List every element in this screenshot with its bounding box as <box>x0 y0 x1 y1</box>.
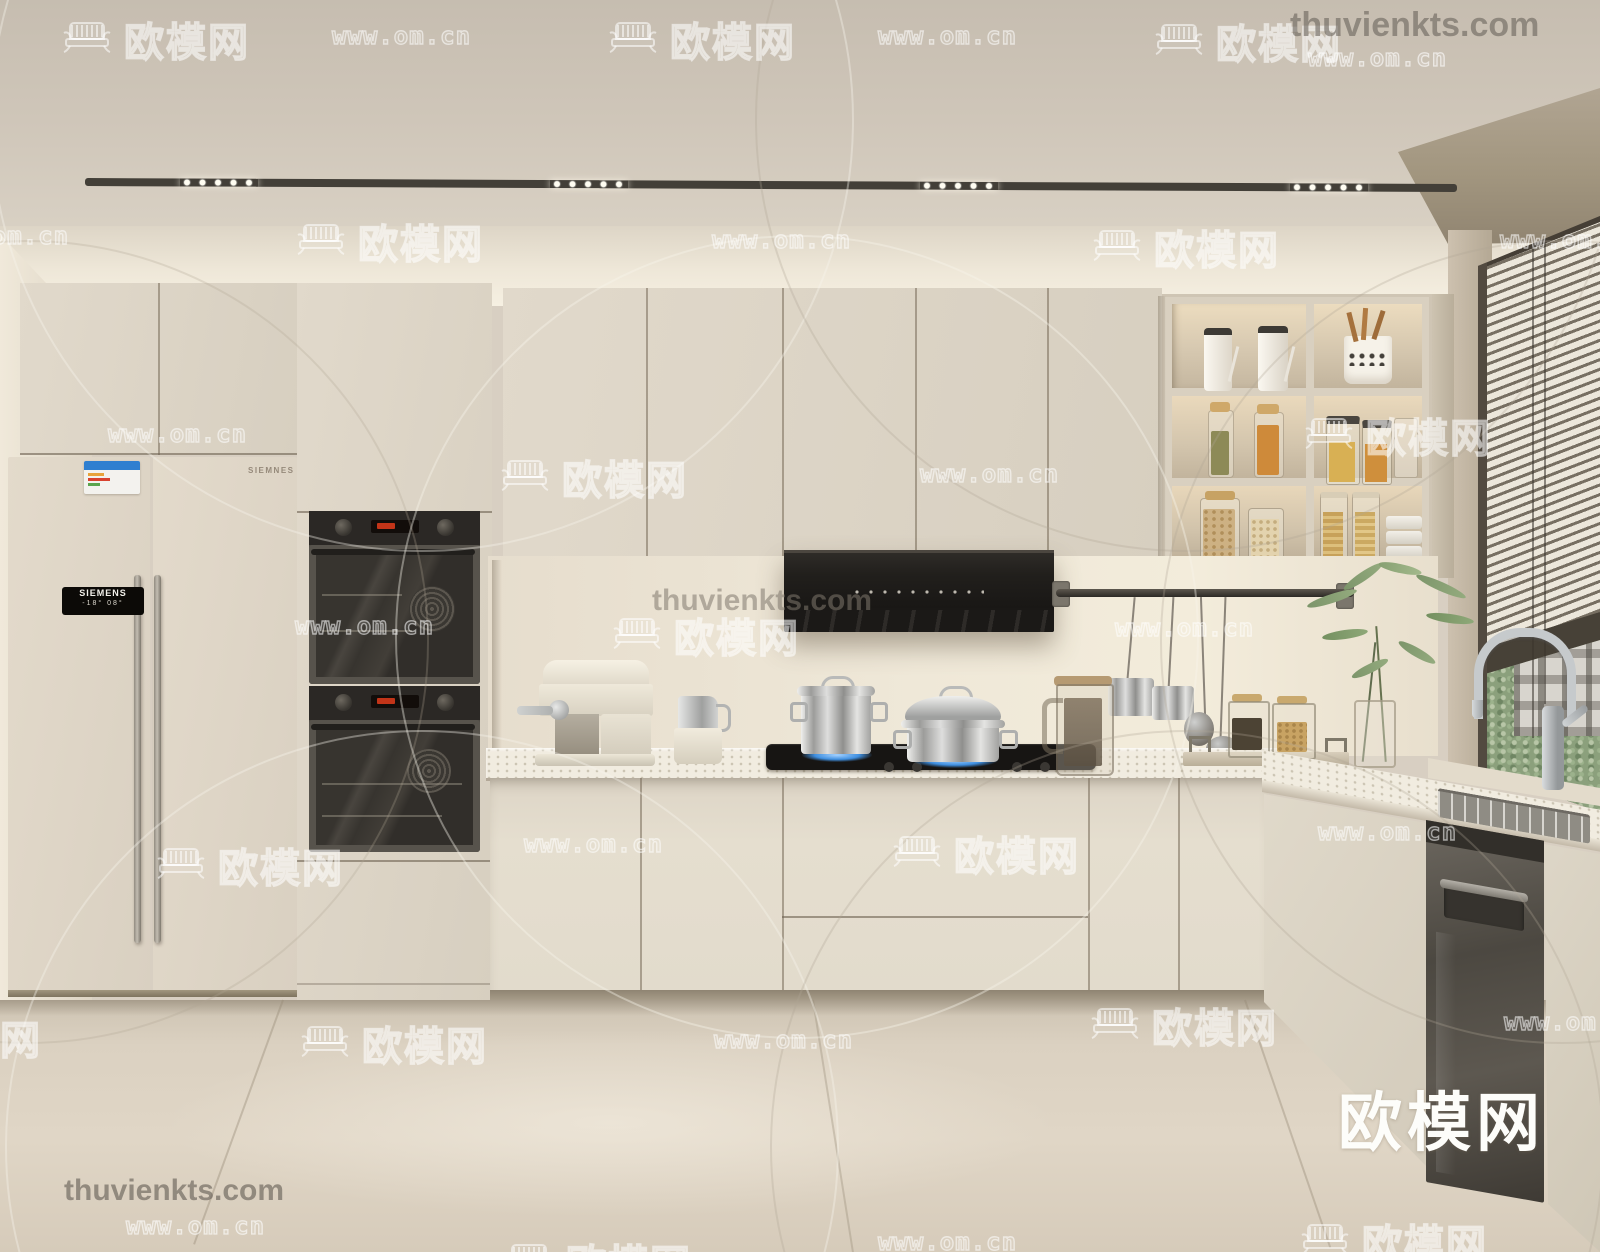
cooktop-knob <box>1012 762 1022 772</box>
plant-vase <box>1354 700 1396 768</box>
faucet-spout <box>1472 700 1483 718</box>
hood-controls <box>854 590 984 594</box>
stockpot <box>795 676 877 756</box>
hanging-cup <box>1152 686 1194 720</box>
cabinet-above-fridge <box>20 283 297 455</box>
casserole-pot <box>899 686 1007 764</box>
fridge-door-right <box>153 457 297 997</box>
cooktop-knob <box>884 762 894 772</box>
jar-grain <box>1362 420 1392 485</box>
floor-highlight <box>160 1028 1060 1218</box>
range-hood <box>784 550 1054 632</box>
right-end-panel <box>1544 840 1600 1252</box>
open-shelf-unit <box>1162 294 1432 570</box>
fridge-handle <box>134 575 141 943</box>
jar-grain <box>1248 508 1284 562</box>
jar-grain <box>1326 416 1360 485</box>
venetian-blind <box>1478 208 1600 678</box>
energy-label <box>84 461 140 494</box>
window <box>1478 208 1600 812</box>
fridge-temp-fridge: 08° <box>107 600 124 607</box>
spotlight-cluster <box>920 182 998 190</box>
fridge-handle <box>154 575 161 943</box>
glass-pitcher <box>1044 676 1116 774</box>
shelf-side-panel <box>1432 294 1454 578</box>
utensil-cup <box>1344 336 1392 384</box>
fridge: SIEMENS -18° 08° SIEMNES <box>8 457 297 997</box>
canister <box>1204 328 1232 391</box>
jar-glass <box>1394 418 1418 478</box>
wall-oven-upper <box>309 511 480 684</box>
wall-oven-lower <box>309 686 480 852</box>
fridge-door-left <box>8 457 150 997</box>
milk-frother <box>672 696 728 766</box>
spotlight-cluster <box>1290 183 1368 191</box>
jar-grain <box>1200 498 1240 562</box>
dishwasher <box>1426 820 1544 1203</box>
jar-grain <box>1208 410 1234 478</box>
base-cabinets <box>490 778 1268 992</box>
spotlight-cluster <box>550 180 628 188</box>
tray-jar <box>1228 694 1266 754</box>
upper-cabinets <box>503 288 1162 558</box>
tin-stack <box>1386 516 1422 560</box>
shelf-cell <box>1172 396 1306 478</box>
tray-jar <box>1272 696 1312 756</box>
cabinet-junction-shadow <box>1158 296 1166 564</box>
spotlight-cluster <box>180 178 258 186</box>
kitchen-render: SIEMENS -18° 08° SIEMNES <box>0 0 1600 1252</box>
jar-grain <box>1254 412 1284 478</box>
fridge-base-shadow <box>8 990 297 997</box>
espresso-machine <box>529 660 661 766</box>
fridge-display-brand: SIEMENS <box>62 587 144 600</box>
fridge-display: SIEMENS -18° 08° <box>62 587 144 615</box>
faucet-body <box>1542 706 1564 790</box>
fridge-temp-freezer: -18° <box>82 600 103 607</box>
fridge-door-logo: SIEMNES <box>248 466 295 475</box>
